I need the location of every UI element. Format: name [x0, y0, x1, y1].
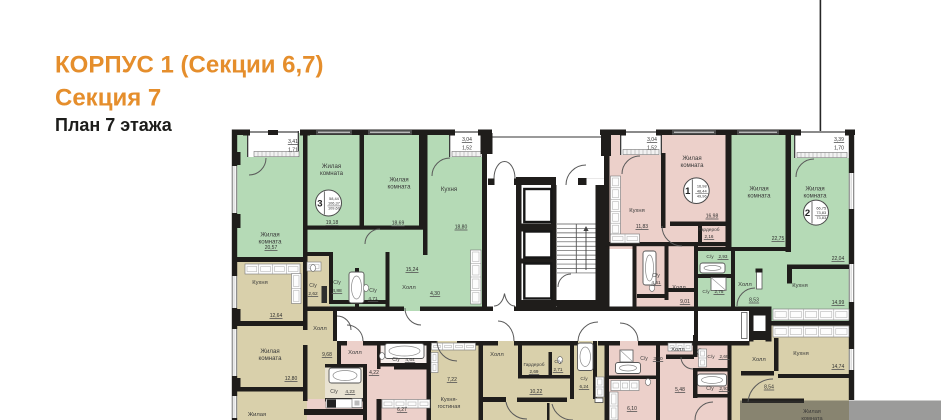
svg-text:109,60: 109,60	[328, 206, 341, 211]
svg-text:План 7 этажа: План 7 этажа	[55, 115, 173, 135]
svg-text:С/у: С/у	[392, 357, 400, 363]
svg-text:Холл: Холл	[313, 326, 327, 332]
svg-text:Холл: Холл	[348, 350, 362, 356]
svg-text:Жилая: Жилая	[248, 412, 266, 418]
svg-text:Кухня: Кухня	[793, 351, 809, 357]
svg-text:1,52: 1,52	[647, 146, 657, 152]
svg-text:С/у: С/у	[706, 386, 714, 392]
svg-text:1,52: 1,52	[462, 146, 472, 152]
svg-text:Жилая: Жилая	[260, 232, 279, 239]
svg-text:2,16: 2,16	[705, 234, 714, 239]
svg-text:Жилая: Жилая	[322, 163, 341, 170]
svg-text:Холл: Холл	[672, 285, 686, 291]
svg-text:С/у: С/у	[706, 254, 714, 260]
svg-text:С/у: С/у	[707, 354, 715, 360]
svg-text:1: 1	[685, 186, 691, 197]
svg-text:КОРПУС 1 (Секции 6,7): КОРПУС 1 (Секции 6,7)	[55, 52, 324, 79]
svg-text:комната: комната	[320, 170, 344, 177]
svg-text:Гардероб: Гардероб	[523, 362, 544, 368]
svg-text:комната: комната	[803, 193, 827, 200]
svg-text:комната: комната	[258, 355, 282, 362]
svg-text:Холл: Холл	[738, 282, 752, 288]
svg-text:Жилая: Жилая	[260, 348, 279, 355]
svg-text:Кухня: Кухня	[441, 186, 457, 193]
svg-text:Гардероб: Гардероб	[698, 227, 719, 233]
svg-text:Жилая: Жилая	[682, 155, 701, 162]
svg-text:49,96: 49,96	[697, 193, 707, 198]
svg-text:1,71: 1,71	[288, 148, 298, 154]
svg-text:2,93: 2,93	[719, 254, 728, 259]
svg-text:С/у: С/у	[702, 289, 710, 295]
svg-text:Холл: Холл	[490, 352, 504, 358]
svg-text:С/у: С/у	[554, 359, 562, 365]
svg-text:Кухня: Кухня	[252, 280, 268, 286]
svg-text:Кухня: Кухня	[792, 283, 808, 289]
svg-text:С/у: С/у	[309, 283, 317, 289]
svg-text:С/у: С/у	[640, 356, 648, 362]
svg-text:Холл: Холл	[671, 347, 685, 353]
svg-text:Холл: Холл	[752, 357, 766, 363]
svg-text:С/у: С/у	[330, 389, 338, 395]
svg-text:гостиная: гостиная	[438, 404, 461, 410]
svg-text:1,70: 1,70	[834, 146, 844, 152]
svg-text:2,71: 2,71	[554, 367, 563, 372]
svg-text:Жилая: Жилая	[749, 186, 768, 193]
svg-text:Жилая: Жилая	[389, 177, 408, 184]
svg-text:комната: комната	[387, 184, 411, 191]
svg-text:2: 2	[805, 208, 810, 219]
svg-text:С/у: С/у	[580, 376, 588, 382]
svg-text:С/у: С/у	[652, 273, 660, 279]
svg-text:Жилая: Жилая	[805, 186, 824, 193]
svg-text:2,69: 2,69	[720, 354, 729, 359]
svg-text:6,24: 6,24	[580, 384, 589, 389]
svg-text:Кухня-: Кухня-	[441, 397, 458, 403]
svg-text:С/у: С/у	[333, 280, 341, 286]
svg-text:С/у: С/у	[369, 288, 377, 294]
svg-text:Холл: Холл	[402, 285, 416, 291]
svg-text:2,69: 2,69	[530, 369, 539, 374]
svg-text:Кухня: Кухня	[629, 208, 645, 214]
svg-text:комната: комната	[747, 193, 771, 200]
svg-text:2,75: 2,75	[715, 289, 724, 294]
svg-text:Секция 7: Секция 7	[55, 85, 161, 112]
svg-text:73,83: 73,83	[816, 215, 826, 220]
svg-text:3: 3	[317, 198, 322, 209]
svg-text:комната: комната	[680, 162, 704, 169]
